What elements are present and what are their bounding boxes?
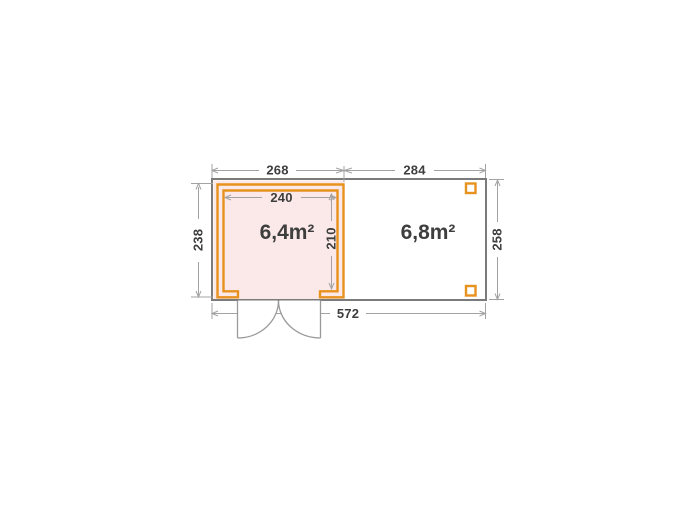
dim-inner-height: 210 <box>324 227 339 249</box>
dim-left-height: 238 <box>191 229 206 251</box>
floor-plan-page: 268 284 240 210 238 258 572 6,4m² 6,8m² <box>0 0 700 525</box>
dim-right-height: 258 <box>490 228 505 250</box>
dim-top-left: 268 <box>266 163 288 178</box>
floor-plan-svg: 268 284 240 210 238 258 572 6,4m² 6,8m² <box>0 0 700 525</box>
terrace-area-label: 6,8m² <box>401 221 456 244</box>
post-bottom-right <box>466 286 476 296</box>
post-top-right <box>466 184 476 194</box>
dim-top-right: 284 <box>403 163 426 178</box>
dim-total-width: 572 <box>337 306 359 321</box>
door-double-swing <box>238 301 321 339</box>
cabin-area-label: 6,4m² <box>260 221 315 244</box>
dim-inner-width: 240 <box>270 190 292 205</box>
